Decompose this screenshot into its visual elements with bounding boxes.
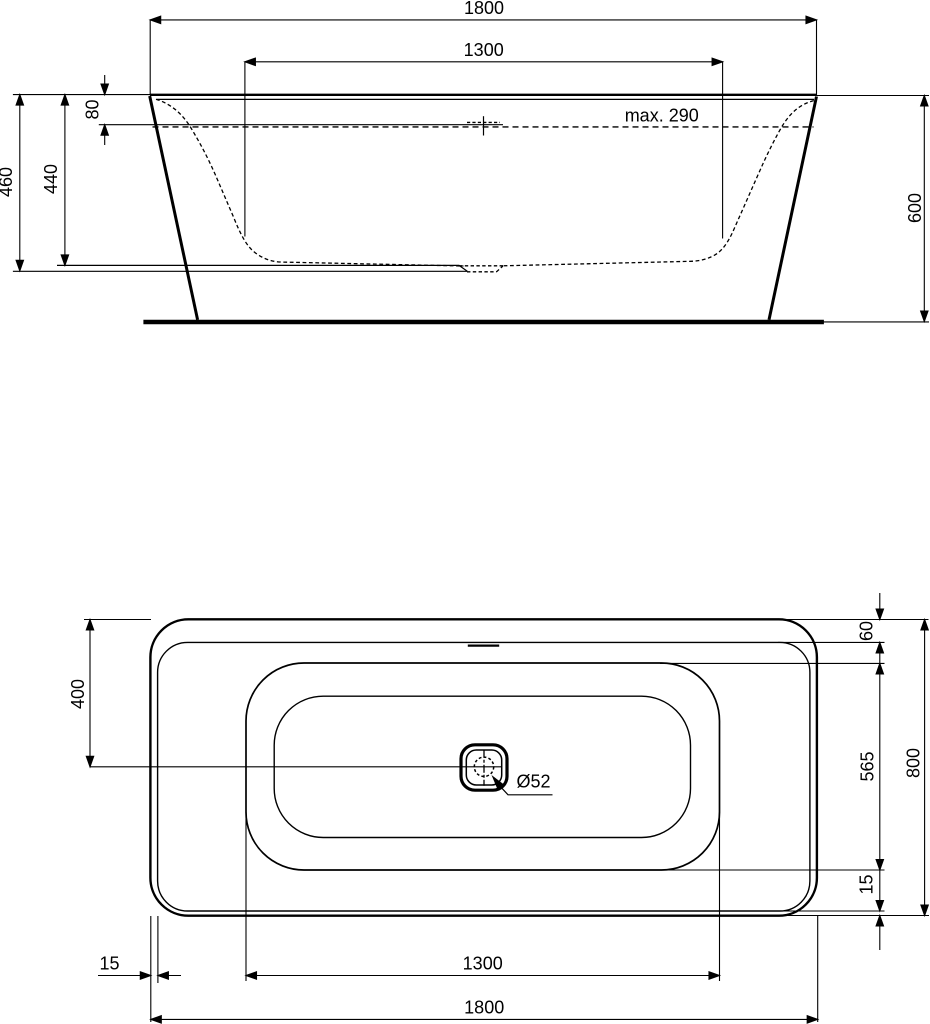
svg-text:1300: 1300 bbox=[464, 40, 504, 60]
svg-text:80: 80 bbox=[83, 99, 103, 119]
svg-text:1300: 1300 bbox=[463, 954, 503, 974]
svg-text:460: 460 bbox=[0, 167, 16, 197]
svg-text:440: 440 bbox=[41, 164, 61, 194]
svg-text:60: 60 bbox=[857, 621, 877, 641]
svg-text:Ø52: Ø52 bbox=[517, 771, 551, 791]
svg-text:1800: 1800 bbox=[464, 0, 504, 18]
svg-text:1800: 1800 bbox=[464, 998, 504, 1018]
svg-text:15: 15 bbox=[857, 874, 877, 894]
svg-text:15: 15 bbox=[99, 954, 119, 974]
svg-text:565: 565 bbox=[858, 751, 878, 781]
svg-text:400: 400 bbox=[68, 679, 88, 709]
svg-text:800: 800 bbox=[904, 748, 924, 778]
svg-text:max. 290: max. 290 bbox=[625, 106, 699, 126]
svg-text:600: 600 bbox=[905, 193, 925, 223]
